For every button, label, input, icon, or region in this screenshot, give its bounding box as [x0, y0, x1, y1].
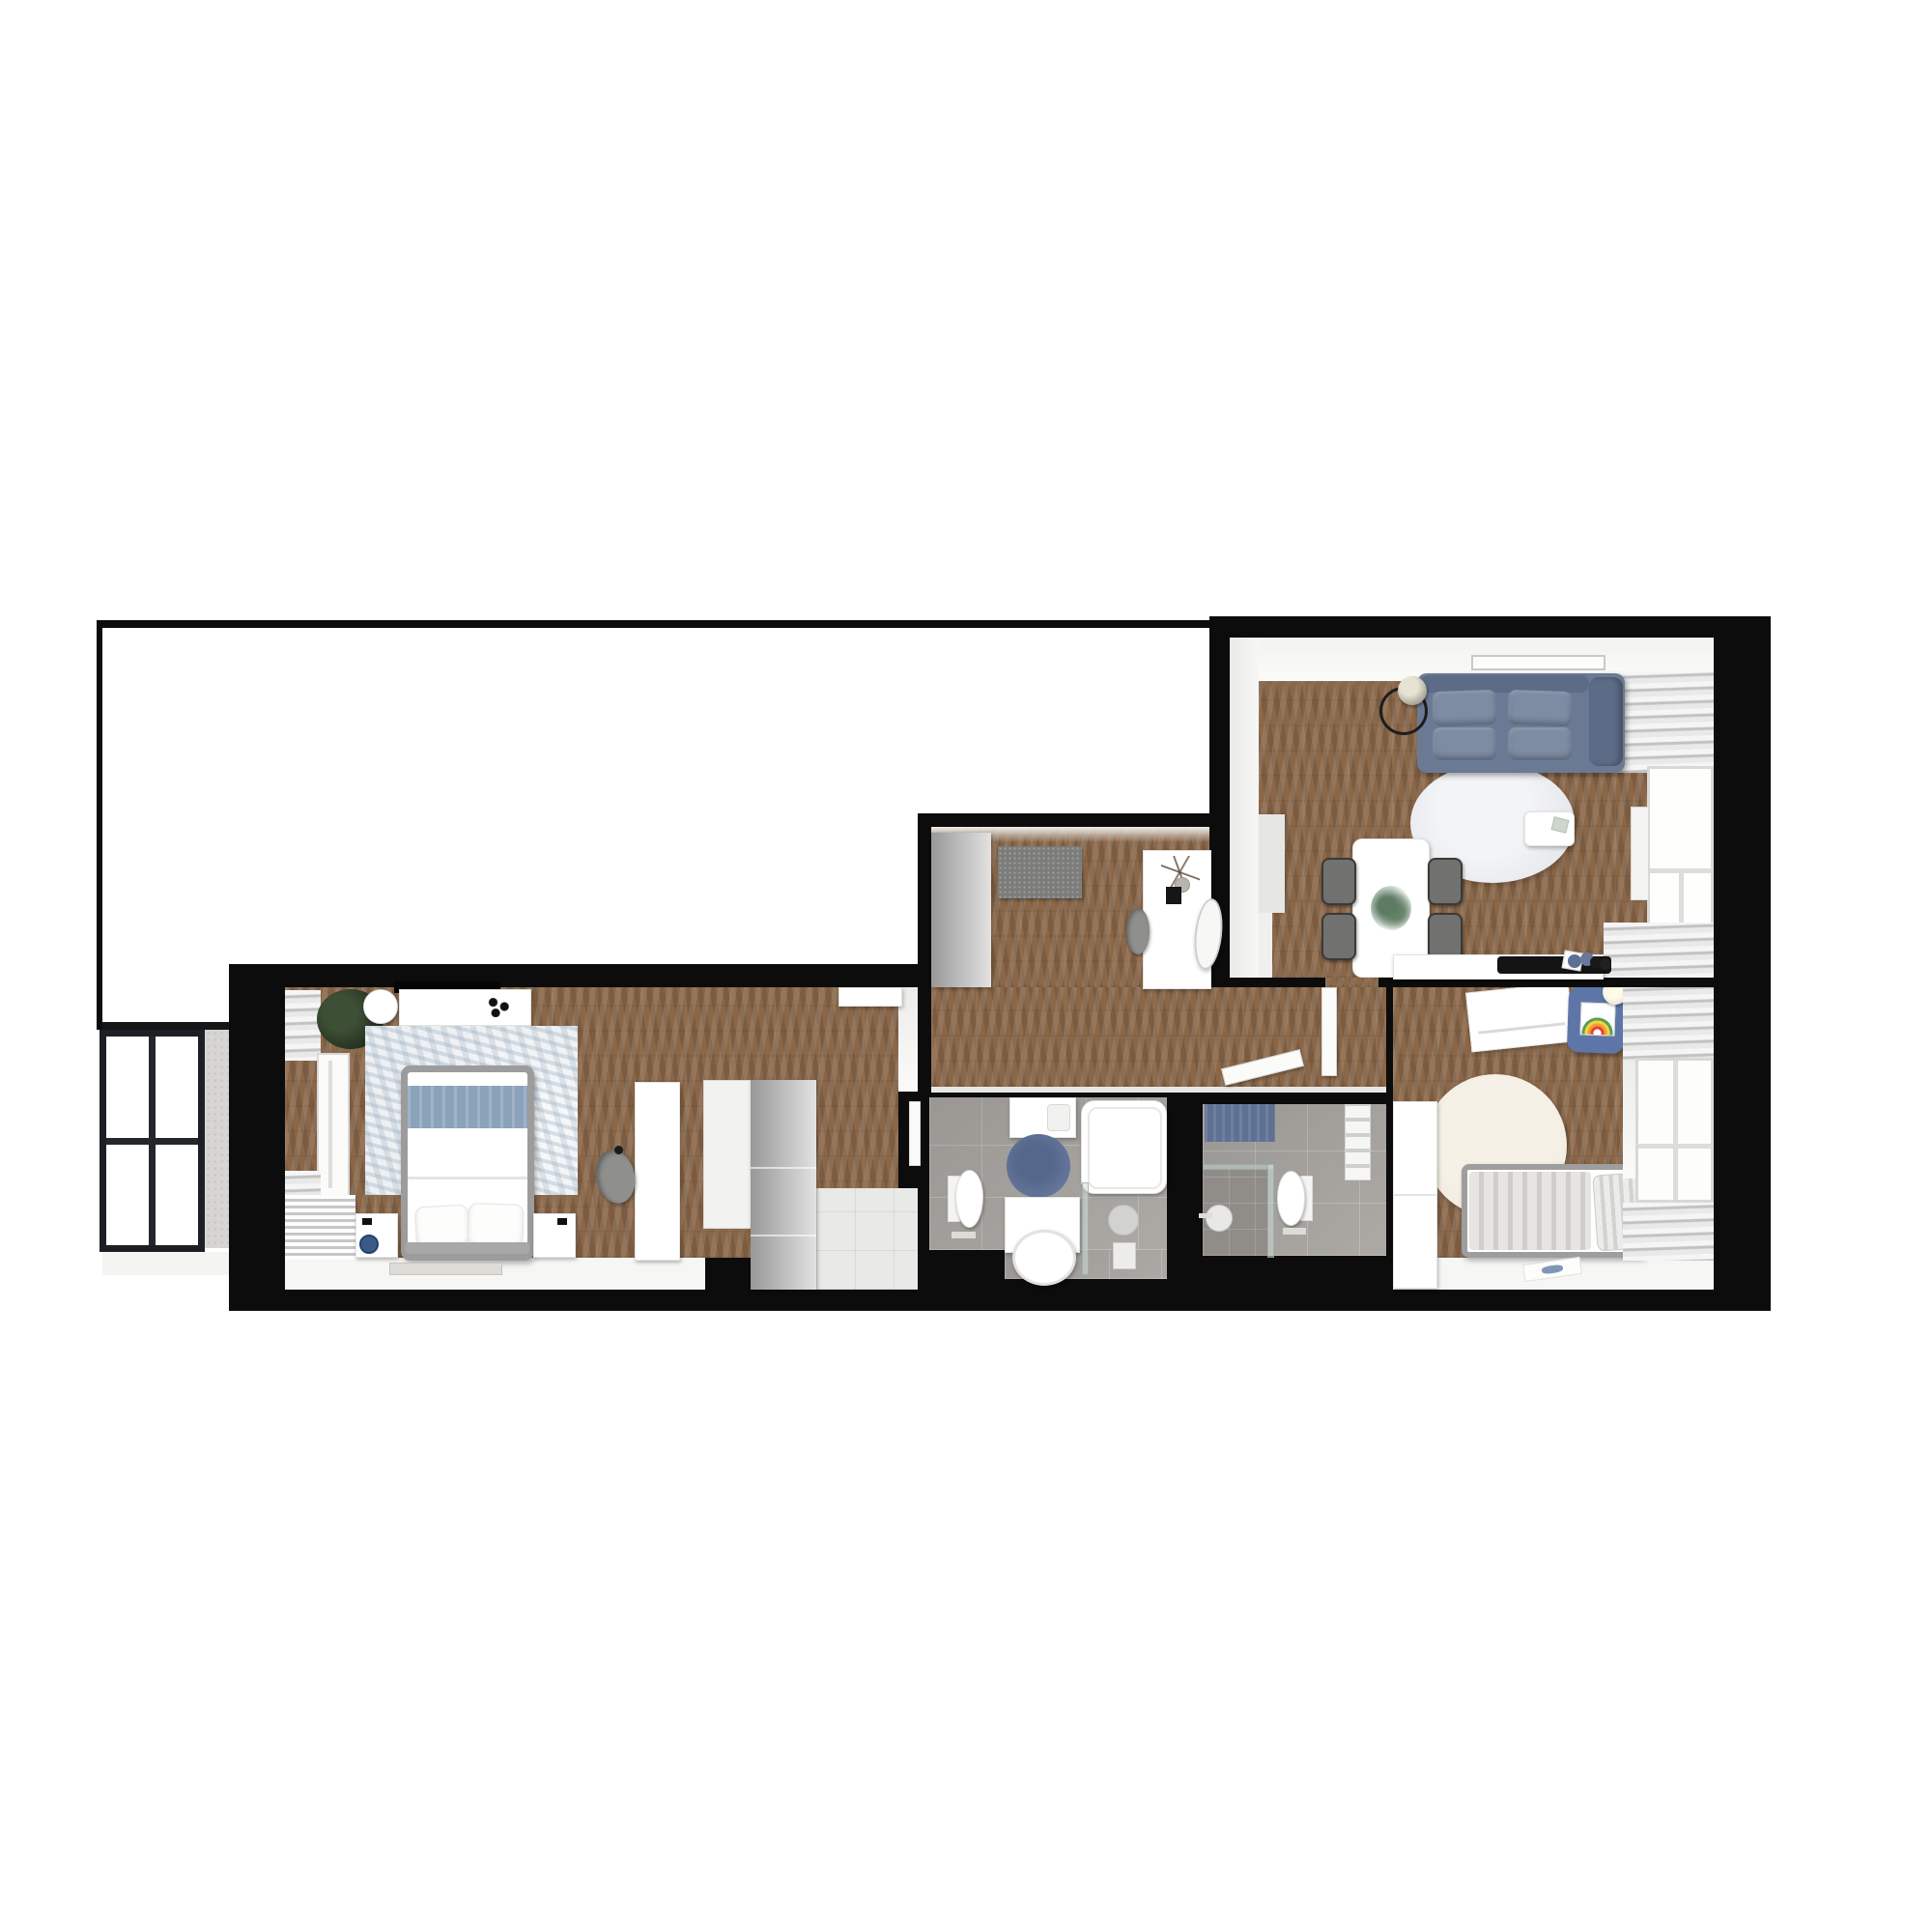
living-radiator	[1631, 807, 1649, 900]
side-table	[363, 989, 398, 1024]
floor-lamp-shade	[1398, 676, 1427, 705]
desk-lamp	[614, 1146, 623, 1154]
nightstand-item	[362, 1218, 372, 1225]
kids-bed	[1462, 1164, 1647, 1258]
nightstand-item	[557, 1218, 567, 1225]
bathroom-2	[1203, 1104, 1386, 1261]
blue-vase	[359, 1235, 379, 1254]
shower-head	[1206, 1205, 1233, 1232]
kids-window-column	[1623, 1061, 1635, 1179]
magazine	[1551, 816, 1570, 833]
round-sink	[1012, 1230, 1076, 1286]
toilet-2	[1277, 1171, 1311, 1224]
drawing-smudge	[1542, 1264, 1564, 1275]
empty-room-right	[918, 628, 1209, 813]
bedroom-desk	[635, 1082, 680, 1261]
shower-arm	[1199, 1213, 1212, 1218]
balcony-sill	[102, 1252, 234, 1275]
sofa-chaise	[1589, 677, 1623, 766]
doormat	[389, 1263, 502, 1275]
wardrobe-side-panel	[703, 1080, 753, 1229]
window-mullion	[1673, 1061, 1678, 1200]
bedroom-door-leaf	[909, 1101, 921, 1166]
bathroom1-blue-rug	[1007, 1134, 1070, 1198]
rainbow-drawing	[1579, 1002, 1615, 1036]
empty-room-corridor	[102, 964, 229, 1024]
bedroom	[285, 987, 918, 1290]
bathtub	[1081, 1100, 1167, 1194]
table-plant	[1371, 886, 1411, 930]
dresser-decor	[487, 996, 512, 1017]
ceiling-vent	[1471, 655, 1605, 670]
dining-chair	[1428, 858, 1463, 905]
bed	[401, 1065, 534, 1261]
window-sill-line	[328, 1061, 332, 1188]
dining-chair	[1321, 913, 1356, 960]
dresser	[399, 989, 531, 1026]
coffee-table	[1524, 811, 1575, 846]
shower-fixture	[1113, 1242, 1136, 1269]
gray-cabinet	[931, 833, 991, 987]
black-box	[1166, 887, 1181, 904]
kids-desk	[1465, 982, 1575, 1053]
kids-curtain-top	[1623, 983, 1714, 1061]
floor-plan	[0, 0, 1932, 1932]
living-left-wall	[1230, 638, 1259, 978]
sofa-pillow	[1507, 690, 1572, 726]
toilet-1	[948, 1170, 981, 1226]
bathroom-1	[929, 1097, 1167, 1279]
left-counter	[1259, 814, 1285, 913]
sofa-back	[1421, 675, 1589, 693]
sofa	[1417, 673, 1625, 773]
hallway-floor	[931, 987, 1386, 1087]
bed-throw-blue	[408, 1086, 527, 1128]
washer-cabinet	[1009, 1097, 1076, 1138]
wardrobe-seam	[1394, 1194, 1436, 1196]
nightstand-right	[533, 1213, 576, 1258]
bedroom-curtain-top	[285, 990, 321, 1061]
kids-duvet	[1469, 1172, 1591, 1250]
shower-glass-2-vertical	[1267, 1164, 1274, 1258]
wall-shelf	[838, 987, 902, 1007]
toilet-bowl	[1277, 1171, 1305, 1226]
doorway-threshold	[1325, 978, 1378, 987]
kids-window	[1635, 1058, 1714, 1203]
dressing-room	[918, 813, 1230, 987]
window-mullion	[1638, 1144, 1711, 1149]
kids-curtain-bottom	[1623, 1203, 1714, 1261]
towel-radiator	[1345, 1104, 1371, 1180]
wardrobe-open-unit	[751, 1080, 816, 1290]
living-room	[1209, 616, 1771, 987]
stool	[1126, 908, 1150, 954]
blue-towel	[1205, 1104, 1275, 1142]
kids-room	[1393, 983, 1714, 1290]
living-curtain-bottomright	[1604, 923, 1714, 978]
window-mullion	[1679, 868, 1684, 924]
bed-duvet-seam	[408, 1177, 527, 1179]
sofa-seat	[1508, 727, 1572, 760]
open-door-leaf-vertical	[1321, 987, 1337, 1076]
balcony-window-frame	[99, 1030, 205, 1252]
hallway	[931, 987, 1386, 1093]
shower-glass-2-horizontal	[1203, 1164, 1274, 1170]
bedroom-radiator	[285, 1195, 355, 1260]
bedroom-entry-tiles	[816, 1188, 918, 1290]
bedroom-window-frame	[317, 1053, 350, 1198]
dining-chair	[1428, 913, 1463, 960]
wardrobe-seam	[751, 1235, 816, 1236]
wardrobe-seam	[751, 1167, 816, 1169]
bed-headboard	[406, 1242, 529, 1254]
toilet1-mat	[952, 1232, 976, 1238]
gray-rug	[998, 846, 1082, 898]
empty-room-main	[102, 628, 918, 964]
kids-wardrobe	[1393, 1101, 1437, 1289]
wall-left	[97, 620, 102, 1030]
black-bottle	[1600, 958, 1611, 970]
dining-chair	[1321, 858, 1356, 905]
wall-top-left	[97, 620, 1209, 628]
living-window	[1647, 766, 1714, 927]
shower-seat	[1108, 1205, 1139, 1236]
toilet-bowl	[955, 1170, 983, 1228]
window-mullion-horizontal	[106, 1138, 198, 1145]
bathtub-rim	[1088, 1107, 1162, 1189]
lower-wing-walls	[229, 964, 1771, 1311]
shower-glass-1	[1082, 1182, 1089, 1275]
balcony	[97, 1022, 237, 1275]
blue-bottle	[1568, 954, 1581, 968]
hallway-bottom-edge	[931, 1087, 1386, 1093]
left-counter-low	[1259, 913, 1272, 978]
toilet2-mat	[1283, 1228, 1306, 1235]
washer-detail	[1047, 1104, 1070, 1131]
sofa-pillow	[1432, 690, 1496, 726]
sofa-seat	[1433, 727, 1496, 760]
desk-edge	[1478, 1022, 1565, 1034]
